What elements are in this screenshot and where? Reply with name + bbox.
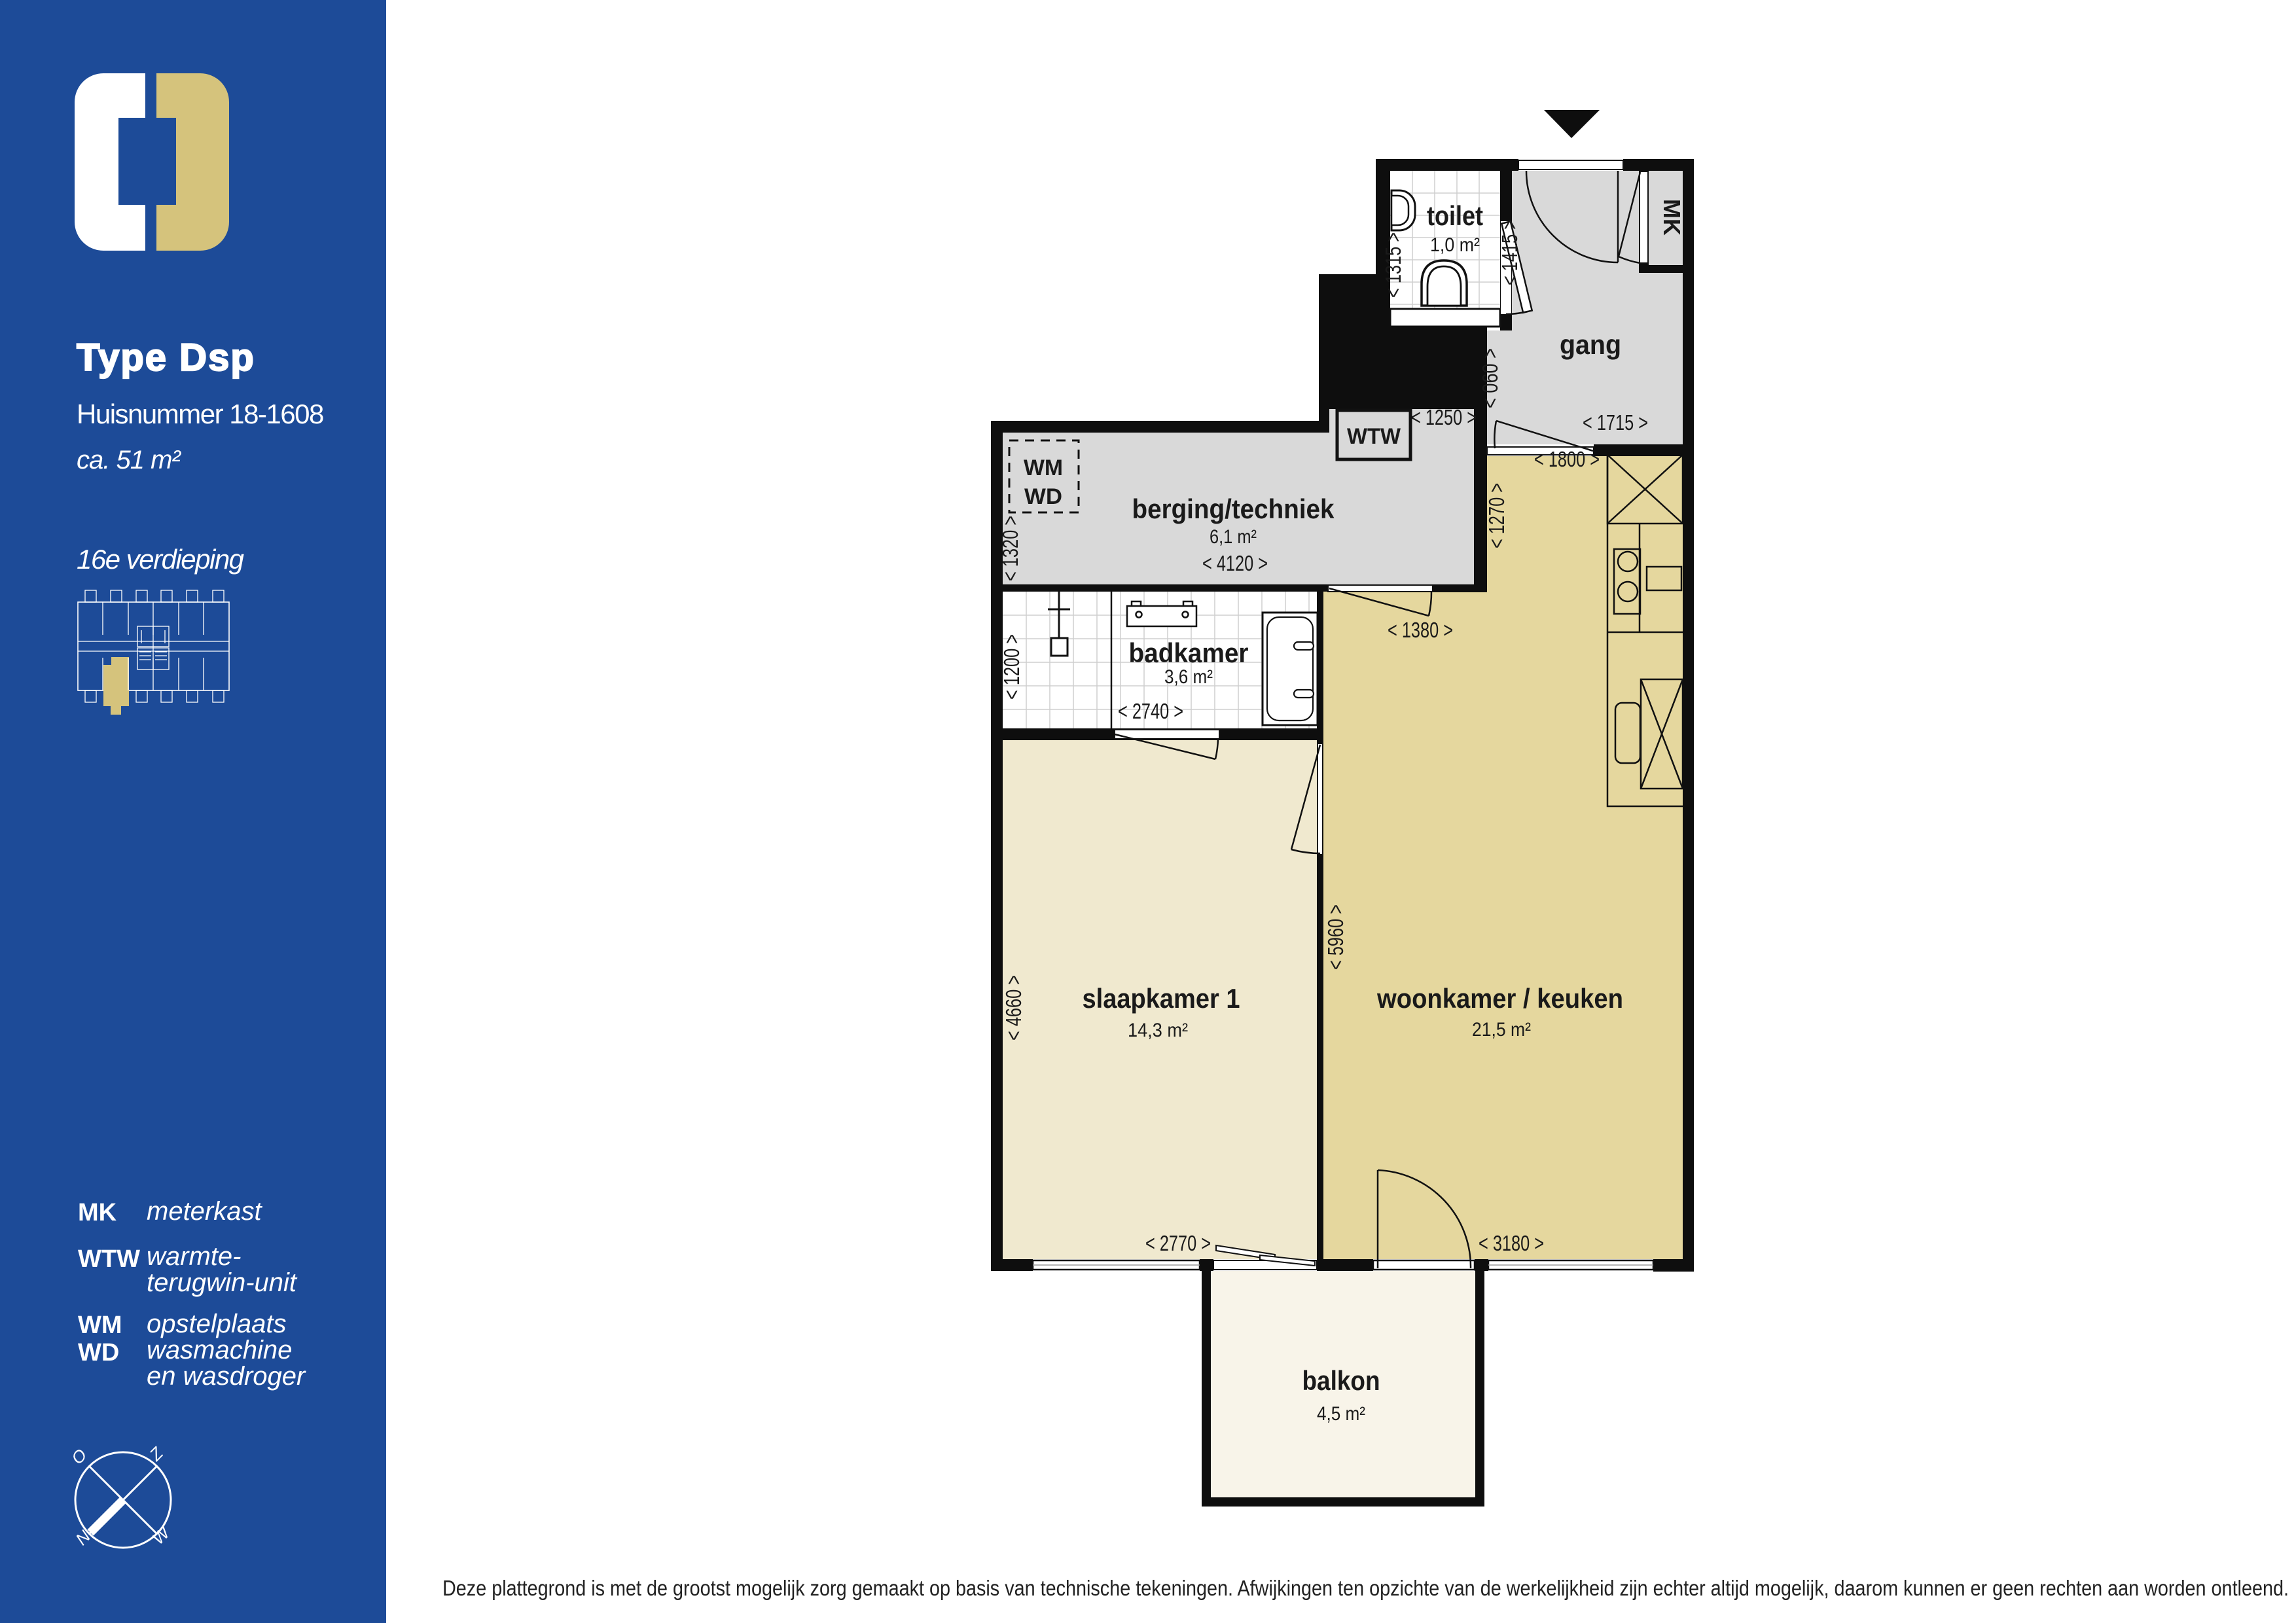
- svg-text:< 2770 >: < 2770 >: [1145, 1231, 1211, 1255]
- svg-text:gang: gang: [1560, 329, 1621, 360]
- svg-text:< 1800 >: < 1800 >: [1534, 447, 1600, 471]
- svg-text:< 3180 >: < 3180 >: [1479, 1231, 1544, 1255]
- svg-text:1,0 m²: 1,0 m²: [1430, 234, 1480, 256]
- svg-text:WTW: WTW: [1347, 424, 1401, 449]
- svg-text:Z: Z: [145, 1443, 168, 1465]
- svg-text:WD: WD: [1024, 484, 1062, 509]
- svg-text:badkamer: badkamer: [1129, 637, 1249, 668]
- svg-text:toilet: toilet: [1427, 200, 1483, 231]
- svg-text:3,6 m²: 3,6 m²: [1164, 666, 1213, 688]
- svg-text:W: W: [148, 1522, 174, 1548]
- svg-text:< 4660 >: < 4660 >: [1001, 975, 1026, 1041]
- svg-text:O: O: [67, 1445, 91, 1469]
- svg-text:berging/techniek: berging/techniek: [1132, 493, 1335, 524]
- svg-text:< 1380 >: < 1380 >: [1388, 618, 1453, 642]
- svg-text:< 1715 >: < 1715 >: [1583, 410, 1648, 435]
- svg-text:balkon: balkon: [1302, 1365, 1380, 1396]
- svg-text:< 2740 >: < 2740 >: [1118, 699, 1183, 723]
- svg-text:4,5 m²: 4,5 m²: [1317, 1403, 1365, 1425]
- svg-text:< 060 >: < 060 >: [1478, 348, 1502, 408]
- svg-text:< 1415 >: < 1415 >: [1498, 220, 1522, 285]
- svg-text:< 1315 >: < 1315 >: [1381, 232, 1405, 298]
- svg-text:woonkamer / keuken: woonkamer / keuken: [1376, 983, 1623, 1014]
- svg-text:< 4120 >: < 4120 >: [1202, 551, 1268, 575]
- svg-text:Deze plattegrond is met de gro: Deze plattegrond is met de grootst mogel…: [442, 1576, 2289, 1600]
- svg-text:< 1320 >: < 1320 >: [998, 516, 1022, 581]
- svg-text:< 5960 >: < 5960 >: [1323, 904, 1348, 970]
- svg-text:< 1270 >: < 1270 >: [1484, 483, 1509, 548]
- svg-text:14,3 m²: 14,3 m²: [1128, 1020, 1188, 1041]
- svg-text:21,5 m²: 21,5 m²: [1472, 1019, 1531, 1041]
- svg-text:WM: WM: [1024, 455, 1063, 480]
- svg-text:6,1 m²: 6,1 m²: [1210, 526, 1257, 548]
- svg-text:MK: MK: [1659, 199, 1685, 236]
- svg-text:slaapkamer 1: slaapkamer 1: [1083, 983, 1240, 1014]
- svg-text:< 1200 >: < 1200 >: [999, 634, 1024, 700]
- svg-text:< 1250 >: < 1250 >: [1411, 405, 1477, 429]
